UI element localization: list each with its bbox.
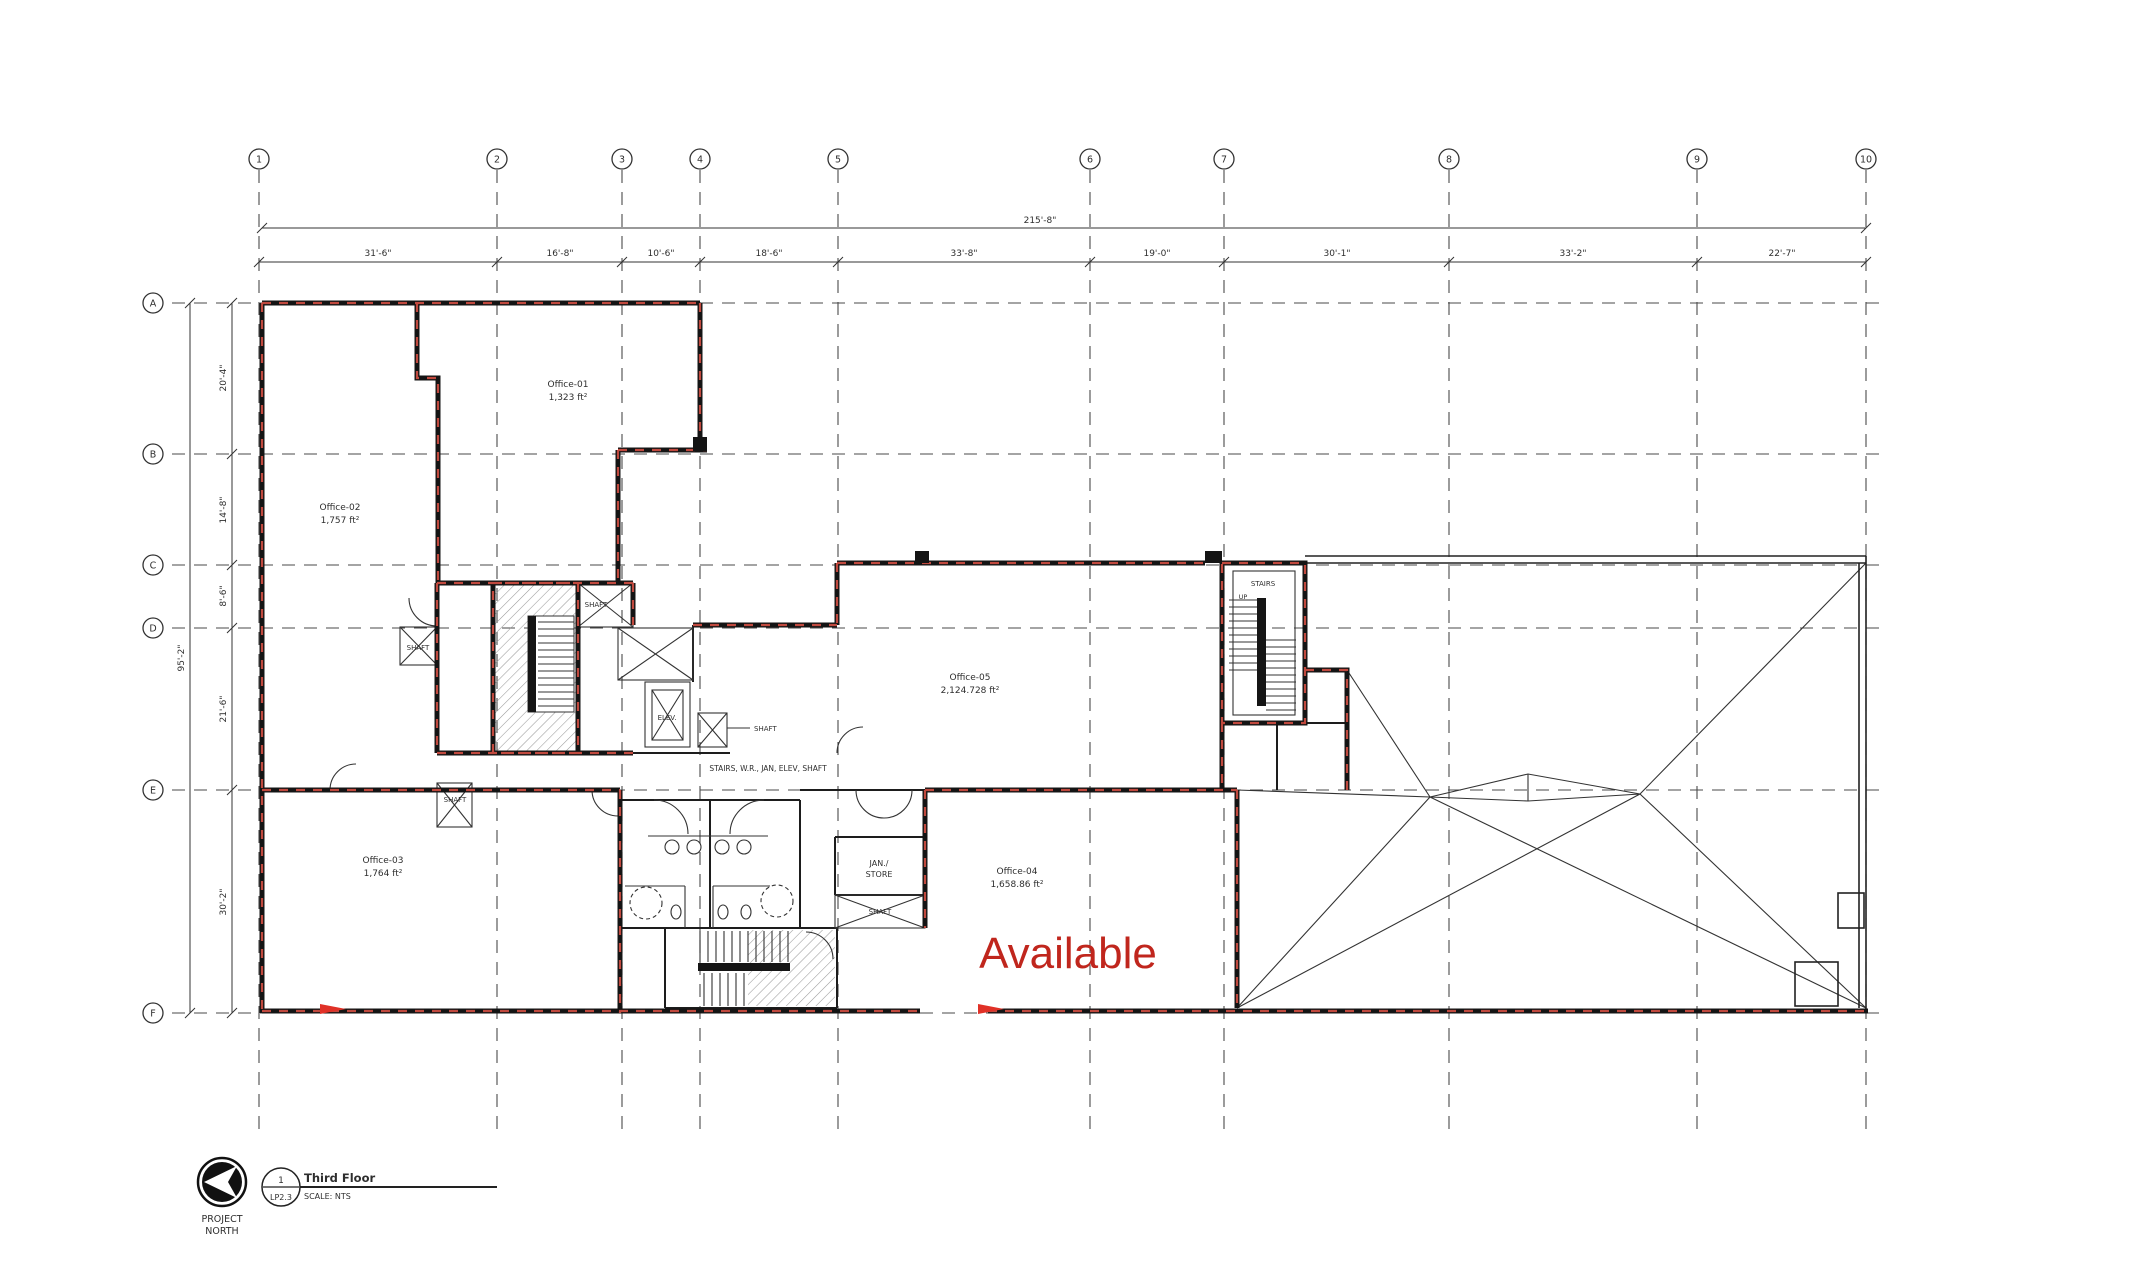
row-span-dim: 20'-4": [219, 364, 229, 391]
detail-number: 1: [278, 1176, 284, 1186]
roof-hip-lines: [1237, 556, 1866, 1011]
available-annotation: Available: [979, 929, 1157, 978]
column-bubble-label: 5: [835, 155, 841, 166]
col-span-dim: 16'-8": [546, 249, 573, 259]
dimension-strings: 215'-8" 31'-6" 16'-8" 10'-6" 18'-6" 33'-…: [177, 216, 1871, 1018]
toilet-icon: [671, 905, 681, 919]
accessible-turning-circle: [630, 887, 662, 919]
shaft-label: SHAFT: [444, 796, 467, 804]
jan-store-label-2: STORE: [866, 870, 893, 879]
office02-area: 1,757 ft²: [321, 516, 360, 526]
shaft-x-large: [618, 628, 693, 680]
roof-line-paths: [1237, 563, 1866, 1008]
column-bubble-label: 7: [1221, 155, 1227, 166]
wall-pilaster: [1205, 551, 1222, 563]
east-stair-treads-down: [1266, 640, 1296, 710]
stair-rail-bar: [528, 616, 536, 712]
col-span-dim: 30'-1": [1323, 249, 1350, 259]
row-bubble-label: B: [150, 450, 157, 461]
wall-pilaster: [915, 551, 929, 563]
wall-pilaster: [693, 437, 707, 451]
overall-width-dim-line: [257, 223, 1871, 233]
sink-icon: [665, 840, 679, 854]
core-note-label: STAIRS, W.R., JAN, ELEV, SHAFT: [709, 764, 827, 773]
office03-name: Office-03: [363, 856, 404, 866]
floor-plan-canvas: 1 2 3 4 5 6 7 8 9 10 A B C D E F 215'-8"…: [0, 0, 2138, 1264]
stairs-up-label: UP: [1239, 593, 1248, 601]
jan-store-label-1: JAN./: [869, 859, 889, 868]
row-span-dim: 21'-6": [219, 695, 229, 722]
roof-access-box: [1838, 893, 1864, 928]
project-north-label-1: PROJECT: [201, 1214, 242, 1225]
shaft-label: SHAFT: [407, 644, 430, 652]
col-span-dim: 19'-0": [1143, 249, 1170, 259]
row-bubble-label: D: [149, 624, 156, 635]
shaft-label: SHAFT: [585, 601, 608, 609]
east-stair-rail-bar: [1257, 598, 1266, 706]
office05-name: Office-05: [950, 673, 991, 683]
col-span-dim: 10'-6": [647, 249, 674, 259]
shaft-x-small: [698, 713, 727, 747]
col-span-dim: 31'-6": [364, 249, 391, 259]
south-stair-rail-bar: [698, 963, 790, 971]
room-labels: Office-01 1,323 ft² Office-02 1,757 ft² …: [320, 380, 1276, 916]
grid-bubbles: 1 2 3 4 5 6 7 8 9 10 A B C D E F: [143, 149, 1876, 1023]
row-span-dim: 30'-2": [219, 888, 229, 915]
office03-area: 1,764 ft²: [364, 869, 403, 879]
drawing-scale: SCALE: NTS: [304, 1192, 351, 1201]
overall-width-dim: 215'-8": [1024, 216, 1057, 226]
column-bubble-label: 8: [1446, 155, 1452, 166]
floor-plan-sheet: 1 2 3 4 5 6 7 8 9 10 A B C D E F 215'-8"…: [0, 0, 2138, 1264]
row-bubble-label: F: [150, 1009, 155, 1020]
column-bubble-label: 10: [1860, 155, 1872, 166]
row-bubble-label: C: [150, 561, 157, 572]
row-span-dim: 14'-8": [219, 496, 229, 523]
column-bubble-label: 1: [256, 155, 262, 166]
toilet-icon: [718, 905, 728, 919]
col-span-dim: 33'-8": [950, 249, 977, 259]
office04-name: Office-04: [997, 867, 1038, 877]
accessible-turning-circle: [761, 885, 793, 917]
col-span-dim: 33'-2": [1559, 249, 1586, 259]
column-bubble-label: 2: [494, 155, 500, 166]
overall-height-dim: 95'-2": [177, 644, 187, 671]
project-north-label-2: NORTH: [205, 1226, 238, 1237]
shaft-label: SHAFT: [869, 908, 892, 916]
sheet-number: LP2.3: [270, 1193, 292, 1202]
drawing-title: Third Floor: [304, 1171, 375, 1185]
row-bubble-label: E: [150, 786, 156, 797]
row-span-dim: 8'-6": [219, 585, 229, 606]
roof-parapet-lines: [1305, 556, 1866, 1011]
column-bubble-label: 9: [1694, 155, 1700, 166]
office01-area: 1,323 ft²: [549, 393, 588, 403]
center-stairwell: [493, 583, 578, 753]
stall-partitions: [625, 886, 770, 928]
shaft-label: SHAFT: [754, 725, 777, 733]
col-span-dim: 22'-7": [1768, 249, 1795, 259]
south-stair: [698, 930, 835, 1006]
column-bubble-label: 3: [619, 155, 625, 166]
col-span-dim: 18'-6": [755, 249, 782, 259]
row-bubble-label: A: [150, 299, 157, 310]
toilet-icon: [741, 905, 751, 919]
sink-icon: [715, 840, 729, 854]
office04-area: 1,658.86 ft²: [990, 880, 1043, 890]
sink-icon: [737, 840, 751, 854]
column-bubble-label: 4: [697, 155, 703, 166]
office01-name: Office-01: [548, 380, 589, 390]
column-bubble-label: 6: [1087, 155, 1093, 166]
structural-grid: [150, 170, 1882, 1138]
office05-area: 2,124.728 ft²: [941, 686, 1000, 696]
office02-name: Office-02: [320, 503, 361, 513]
sink-icon: [687, 840, 701, 854]
elevator-label: ELEV.: [658, 714, 677, 722]
south-stair-treads-lower: [704, 973, 744, 1006]
grid-row-lines: [150, 303, 1882, 1013]
title-block: PROJECT NORTH 1 LP2.3 Third Floor SCALE:…: [198, 1158, 497, 1237]
stairs-label: STAIRS: [1251, 580, 1276, 588]
